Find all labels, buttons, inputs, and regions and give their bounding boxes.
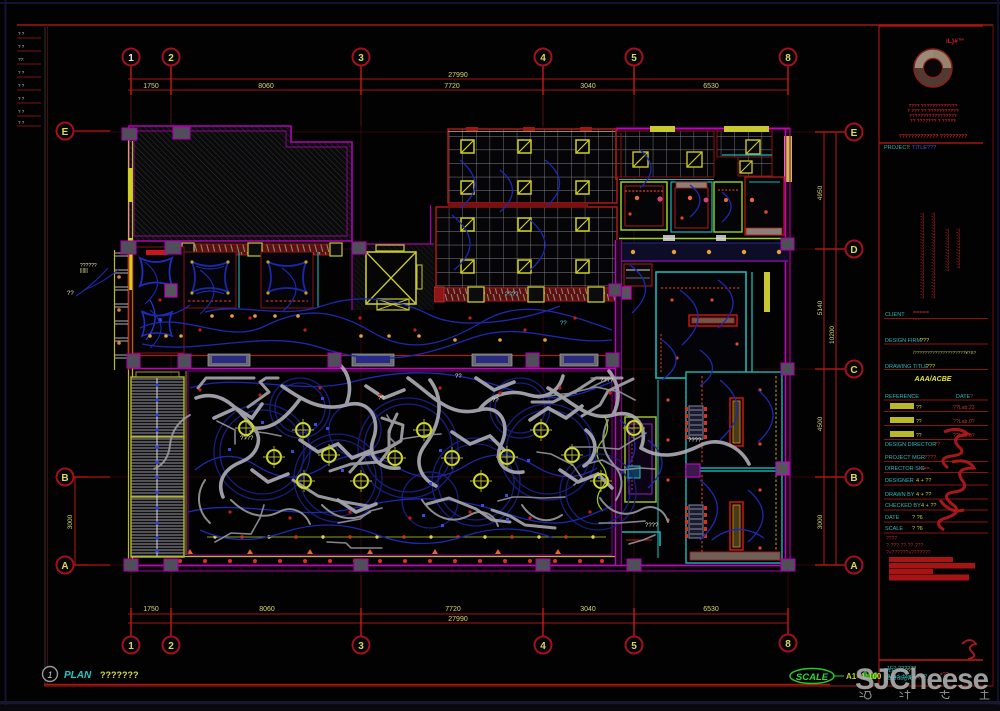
svg-text:? ?6: ? ?6 (912, 526, 923, 532)
svg-text:8: 8 (785, 53, 791, 64)
svg-text:C: C (850, 365, 857, 376)
svg-text:6530: 6530 (703, 606, 719, 613)
svg-text:PROJECT:: PROJECT: (884, 145, 911, 151)
svg-text:???????: ??????? (100, 670, 138, 680)
svg-text:??:: ??: (18, 57, 24, 62)
svg-text:? ?: ? ? (18, 96, 25, 101)
svg-text:??: ?? (492, 398, 499, 404)
svg-text:E: E (851, 128, 858, 139)
svg-text:??: ?? (916, 405, 922, 411)
svg-text:4 + ??: 4 + ?? (916, 492, 931, 498)
svg-text:A: A (850, 561, 857, 572)
svg-text:B: B (61, 473, 68, 484)
svg-text:? ?: ? ? (18, 44, 25, 49)
svg-text:2: 2 (168, 641, 174, 652)
svg-text:??: ?? (934, 442, 940, 448)
svg-text:4950: 4950 (817, 185, 824, 200)
svg-text:DRAWN BY: DRAWN BY (885, 492, 915, 498)
svg-text:E: E (62, 127, 69, 138)
svg-text:3000: 3000 (67, 514, 74, 529)
svg-text:DATE: DATE (956, 394, 971, 400)
svg-text:SCALE: SCALE (885, 526, 903, 532)
svg-text:DESIGN FIRM: DESIGN FIRM (885, 338, 921, 344)
svg-text:||||||: |||||| (80, 268, 88, 274)
svg-text:2: 2 (168, 53, 174, 64)
svg-text:DESIGN DIRECTOR: DESIGN DIRECTOR (885, 442, 936, 448)
svg-text:iL}#™: iL}#™ (946, 38, 964, 45)
svg-text:????: ???? (886, 536, 897, 542)
svg-text:DIRECTOR SIG: DIRECTOR SIG (885, 466, 925, 472)
svg-text:REFERENCE: REFERENCE (885, 394, 919, 400)
svg-text:7720: 7720 (445, 606, 461, 613)
svg-text:?«??????»???????: ?«??????»??????? (886, 550, 931, 556)
svg-text:6530: 6530 (703, 83, 719, 90)
svg-text:4: 4 (540, 641, 546, 652)
svg-text:3040: 3040 (580, 606, 596, 613)
svg-text:4: 4 (540, 53, 546, 64)
svg-text:?? ??????? ? ?????: ?? ??????? ? ????? (910, 118, 956, 123)
svg-text:????: ???? (645, 523, 659, 529)
svg-text:??: ?? (67, 291, 74, 297)
svg-text:DATE: DATE (885, 515, 900, 521)
svg-text:???????????????: ??????????????? (943, 228, 949, 271)
svg-text:??Lab.0?: ??Lab.0? (953, 419, 975, 425)
svg-text:/????????????????????¥?S?: /????????????????????¥?S? (913, 350, 977, 355)
svg-text:? ?: ? ? (18, 83, 25, 88)
svg-text:??: ?? (378, 396, 385, 402)
svg-text:??: ?? (916, 419, 922, 425)
svg-text:B: B (850, 473, 857, 484)
svg-text:1: 1 (47, 670, 52, 680)
svg-text:????: ???? (600, 378, 614, 384)
svg-text:? ?: ? ? (18, 120, 25, 125)
svg-text:???: ??? (920, 338, 929, 344)
svg-text:8060: 8060 (259, 606, 275, 613)
svg-text:DESIGNER: DESIGNER (885, 478, 914, 484)
svg-text:SCALE: SCALE (796, 672, 829, 683)
svg-text:CHECKED BY: CHECKED BY (885, 503, 921, 509)
svg-text:? ?: ? ? (18, 109, 25, 114)
svg-text:D: D (850, 245, 857, 256)
svg-text:????: ???? (505, 292, 519, 298)
svg-text:?·???·??·??·???: ?·???·??·??·??? (886, 543, 923, 549)
svg-text:??????????????????????????????: ?????????????????????????????? (929, 212, 935, 299)
svg-text:5: 5 (631, 641, 637, 652)
svg-text:5: 5 (631, 53, 637, 64)
svg-text:??Lab.23: ??Lab.23 (953, 405, 975, 411)
svg-text:PROJECT MGR: PROJECT MGR (885, 455, 925, 461)
svg-text:PLAN: PLAN (64, 670, 92, 681)
svg-text:?: ? (970, 394, 973, 400)
svg-text:1750: 1750 (143, 606, 159, 613)
svg-text:????: ???? (924, 455, 936, 461)
svg-text:===..: ===.. (920, 466, 933, 472)
svg-text:??: ?? (560, 321, 567, 327)
svg-text:7720: 7720 (444, 83, 460, 90)
svg-text:????: ???? (688, 438, 702, 444)
svg-text:1750: 1750 (143, 83, 159, 90)
svg-text:TITLE???: TITLE??? (912, 145, 936, 151)
svg-text:1: 1 (128, 53, 134, 64)
svg-text:10200: 10200 (829, 326, 836, 344)
svg-text:AAA/ACBE: AAA/ACBE (914, 376, 952, 383)
svg-text:3: 3 (358, 53, 364, 64)
svg-text:??????????????????????????????: ?????????????????????????????? (918, 212, 924, 299)
svg-text:? ?: ? ? (18, 70, 25, 75)
svg-text:3040: 3040 (580, 83, 596, 90)
svg-text:4 + ??: 4 + ?? (916, 478, 931, 484)
svg-text:A: A (61, 561, 68, 572)
svg-text:3: 3 (358, 641, 364, 652)
svg-text:3000: 3000 (817, 514, 824, 529)
svg-text:????????????? ?????????: ????????????? ????????? (899, 134, 968, 140)
svg-text:SJCheese: SJCheese (855, 663, 989, 696)
svg-text:?: ? (911, 394, 914, 400)
svg-text:CLIENT: CLIENT (885, 312, 905, 318)
svg-text:??: ?? (455, 374, 462, 380)
svg-text:1: 1 (128, 641, 134, 652)
svg-text:8: 8 (785, 639, 791, 650)
svg-text:8060: 8060 (258, 83, 274, 90)
svg-text:5140: 5140 (817, 300, 824, 315)
svg-text:27990: 27990 (448, 616, 468, 623)
svg-text:??: ?? (916, 433, 922, 439)
svg-text:??????????????: ?????????????? (954, 228, 960, 269)
svg-text:27990: 27990 (448, 72, 468, 79)
svg-text:? ?: ? ? (18, 31, 25, 36)
svg-text:????: ???? (240, 436, 254, 442)
svg-text:4500: 4500 (817, 416, 824, 431)
svg-text:4 + ??: 4 + ?? (921, 503, 936, 509)
svg-text:? ?6: ? ?6 (912, 515, 923, 521)
